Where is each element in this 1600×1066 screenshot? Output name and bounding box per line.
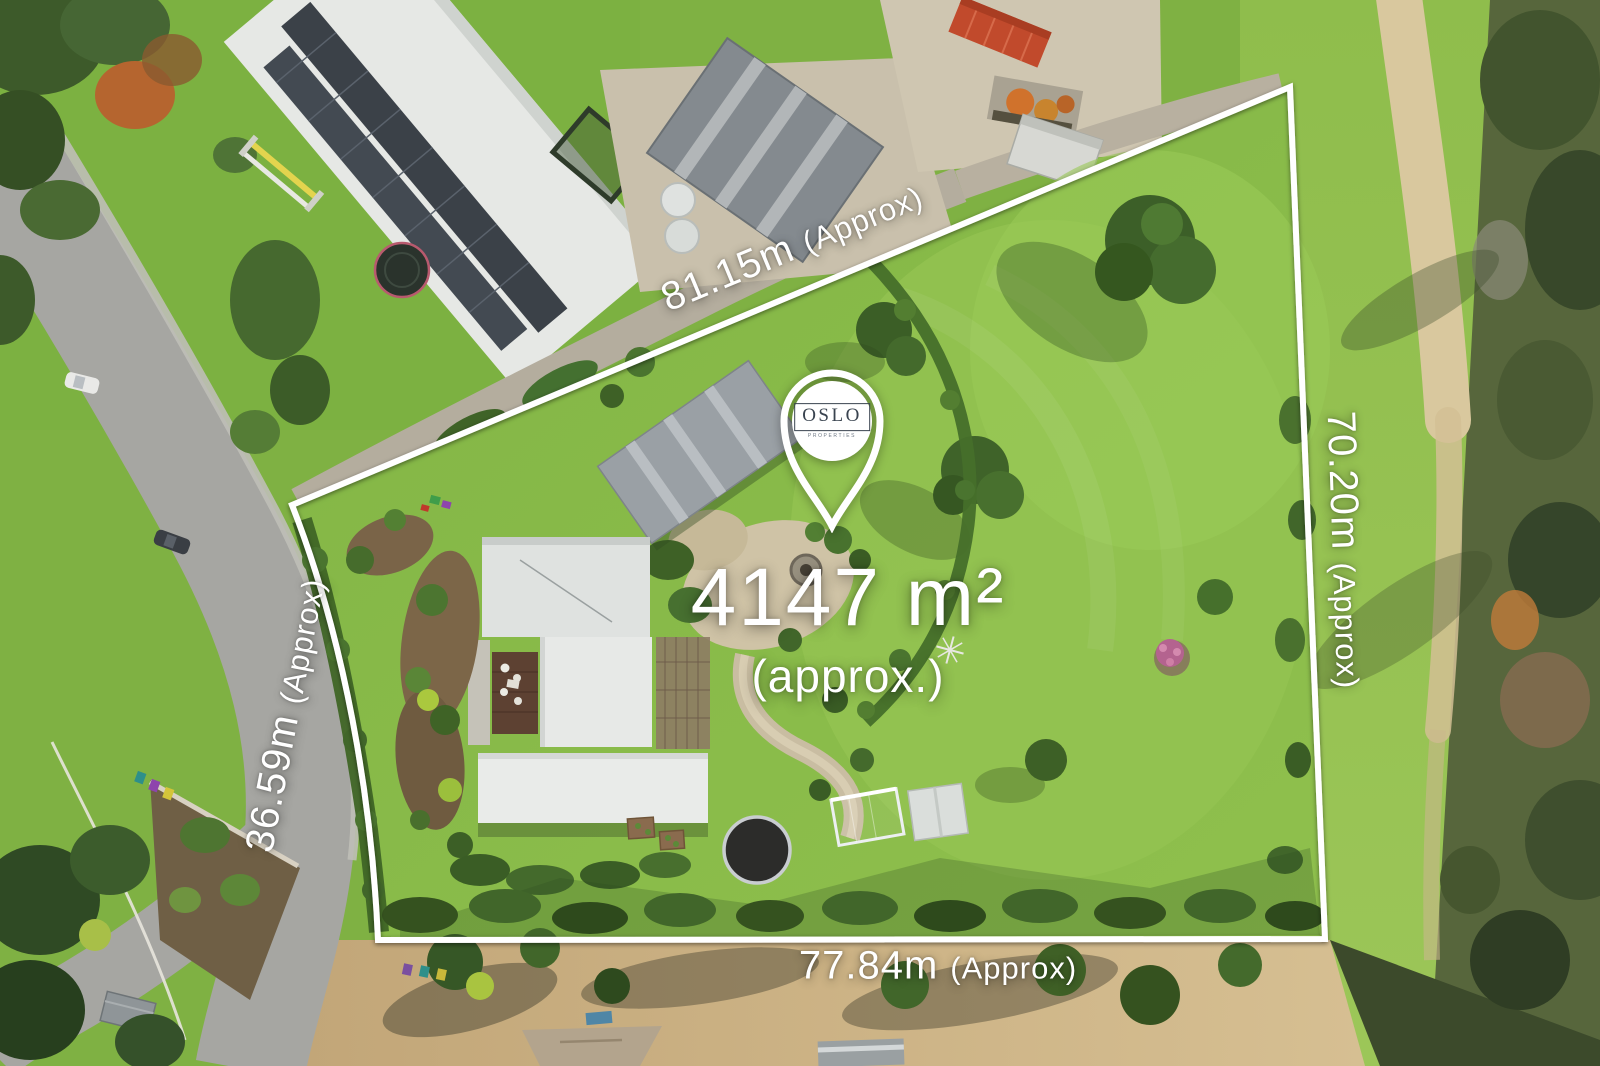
- soccer-goal: [831, 789, 904, 846]
- boundary-length-bottom: 77.84m: [799, 944, 938, 989]
- land-area-label: 4147 m² (approx.): [691, 557, 1006, 699]
- inground-trampoline: [724, 817, 790, 883]
- house-roof-south: [478, 753, 708, 823]
- boundary-qualifier-bottom: (Approx): [950, 951, 1077, 987]
- aerial-property-photo: 81.15m (Approx) 70.20m (Approx) 36.59m (…: [0, 0, 1600, 1066]
- land-area-qualifier: (approx.): [691, 653, 1006, 699]
- deck: [492, 652, 538, 734]
- house-roof-north: [482, 537, 650, 637]
- boundary-label-bottom: 77.84m (Approx): [799, 944, 1077, 989]
- boundary-qualifier-right: (Approx): [1325, 562, 1365, 690]
- brand-logo: OSLO PROPERTIES: [794, 403, 870, 439]
- map-pin: OSLO PROPERTIES: [772, 363, 892, 533]
- house-roof-mid: [540, 637, 652, 747]
- land-area-value: 4147 m²: [691, 557, 1006, 639]
- brand-logo-subtext: PROPERTIES: [808, 433, 856, 439]
- boundary-label-right: 70.20m (Approx): [1318, 410, 1373, 690]
- boundary-length-right: 70.20m: [1318, 410, 1368, 551]
- brand-logo-text: OSLO: [794, 403, 870, 431]
- map-pin-icon: [772, 363, 892, 533]
- garden-shed: [908, 783, 968, 840]
